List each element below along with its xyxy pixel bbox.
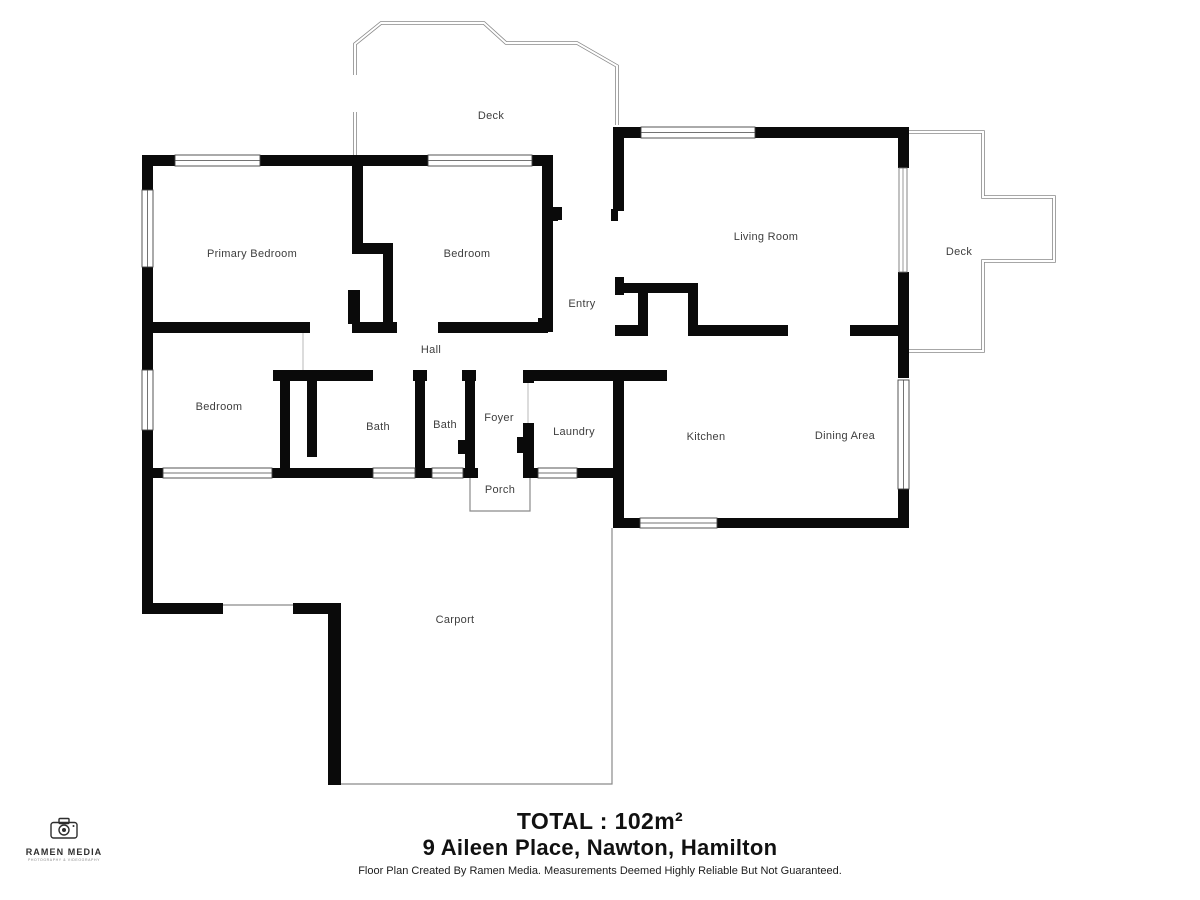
room-label-dining-area: Dining Area (815, 430, 875, 442)
room-label-porch: Porch (485, 484, 515, 496)
room-label-hall: Hall (421, 344, 441, 356)
room-label-deck-right: Deck (946, 246, 972, 258)
room-label-carport: Carport (436, 614, 475, 626)
address-text: 9 Aileen Place, Nawton, Hamilton (0, 835, 1200, 861)
deck-outlines (355, 23, 1054, 351)
room-label-living-room: Living Room (734, 231, 798, 243)
disclaimer-text: Floor Plan Created By Ramen Media. Measu… (0, 865, 1200, 877)
room-label-primary-bedroom: Primary Bedroom (207, 248, 297, 260)
room-label-kitchen: Kitchen (687, 431, 726, 443)
room-label-entry: Entry (568, 298, 595, 310)
floor-plan-page: DeckPrimary BedroomBedroomEntryLiving Ro… (0, 0, 1200, 900)
room-label-bath-2: Bath (433, 419, 457, 431)
carport-outline (223, 528, 612, 784)
walls (142, 127, 909, 785)
total-area-text: TOTAL : 102m² (0, 808, 1200, 834)
room-label-foyer: Foyer (484, 412, 514, 424)
footer: TOTAL : 102m² 9 Aileen Place, Nawton, Ha… (0, 808, 1200, 877)
room-label-bedroom-top: Bedroom (444, 248, 491, 260)
room-label-bedroom-left: Bedroom (196, 401, 243, 413)
room-label-deck-top: Deck (478, 110, 504, 122)
floor-plan-drawing (0, 0, 1200, 900)
room-label-laundry: Laundry (553, 426, 595, 438)
room-label-bath-1: Bath (366, 421, 390, 433)
